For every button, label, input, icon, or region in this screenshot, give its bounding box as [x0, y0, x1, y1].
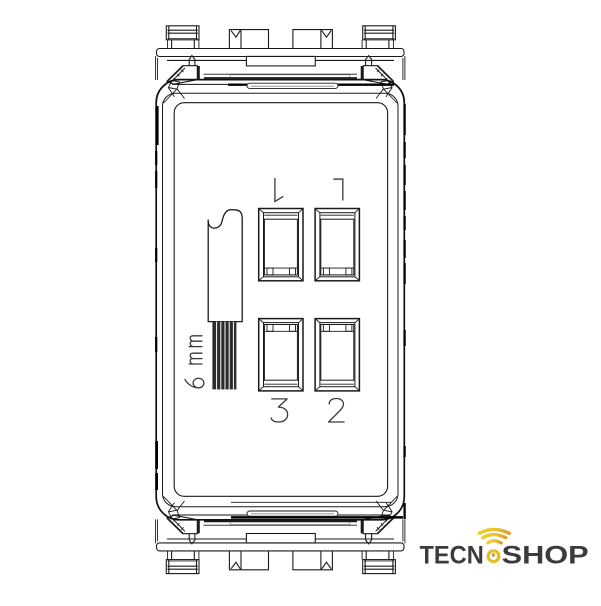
svg-text:TECN: TECN [420, 542, 484, 570]
svg-text:SHOP: SHOP [502, 542, 589, 570]
